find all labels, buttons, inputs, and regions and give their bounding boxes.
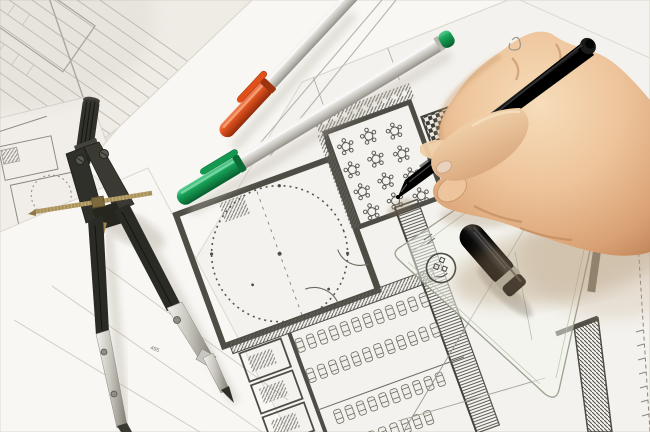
black-marker-nib [396,195,400,199]
compass-brass-nut [91,196,104,208]
scene-canvas: 495 2514 [0,0,650,432]
photo-architect-workspace: 495 2514 [0,0,650,432]
